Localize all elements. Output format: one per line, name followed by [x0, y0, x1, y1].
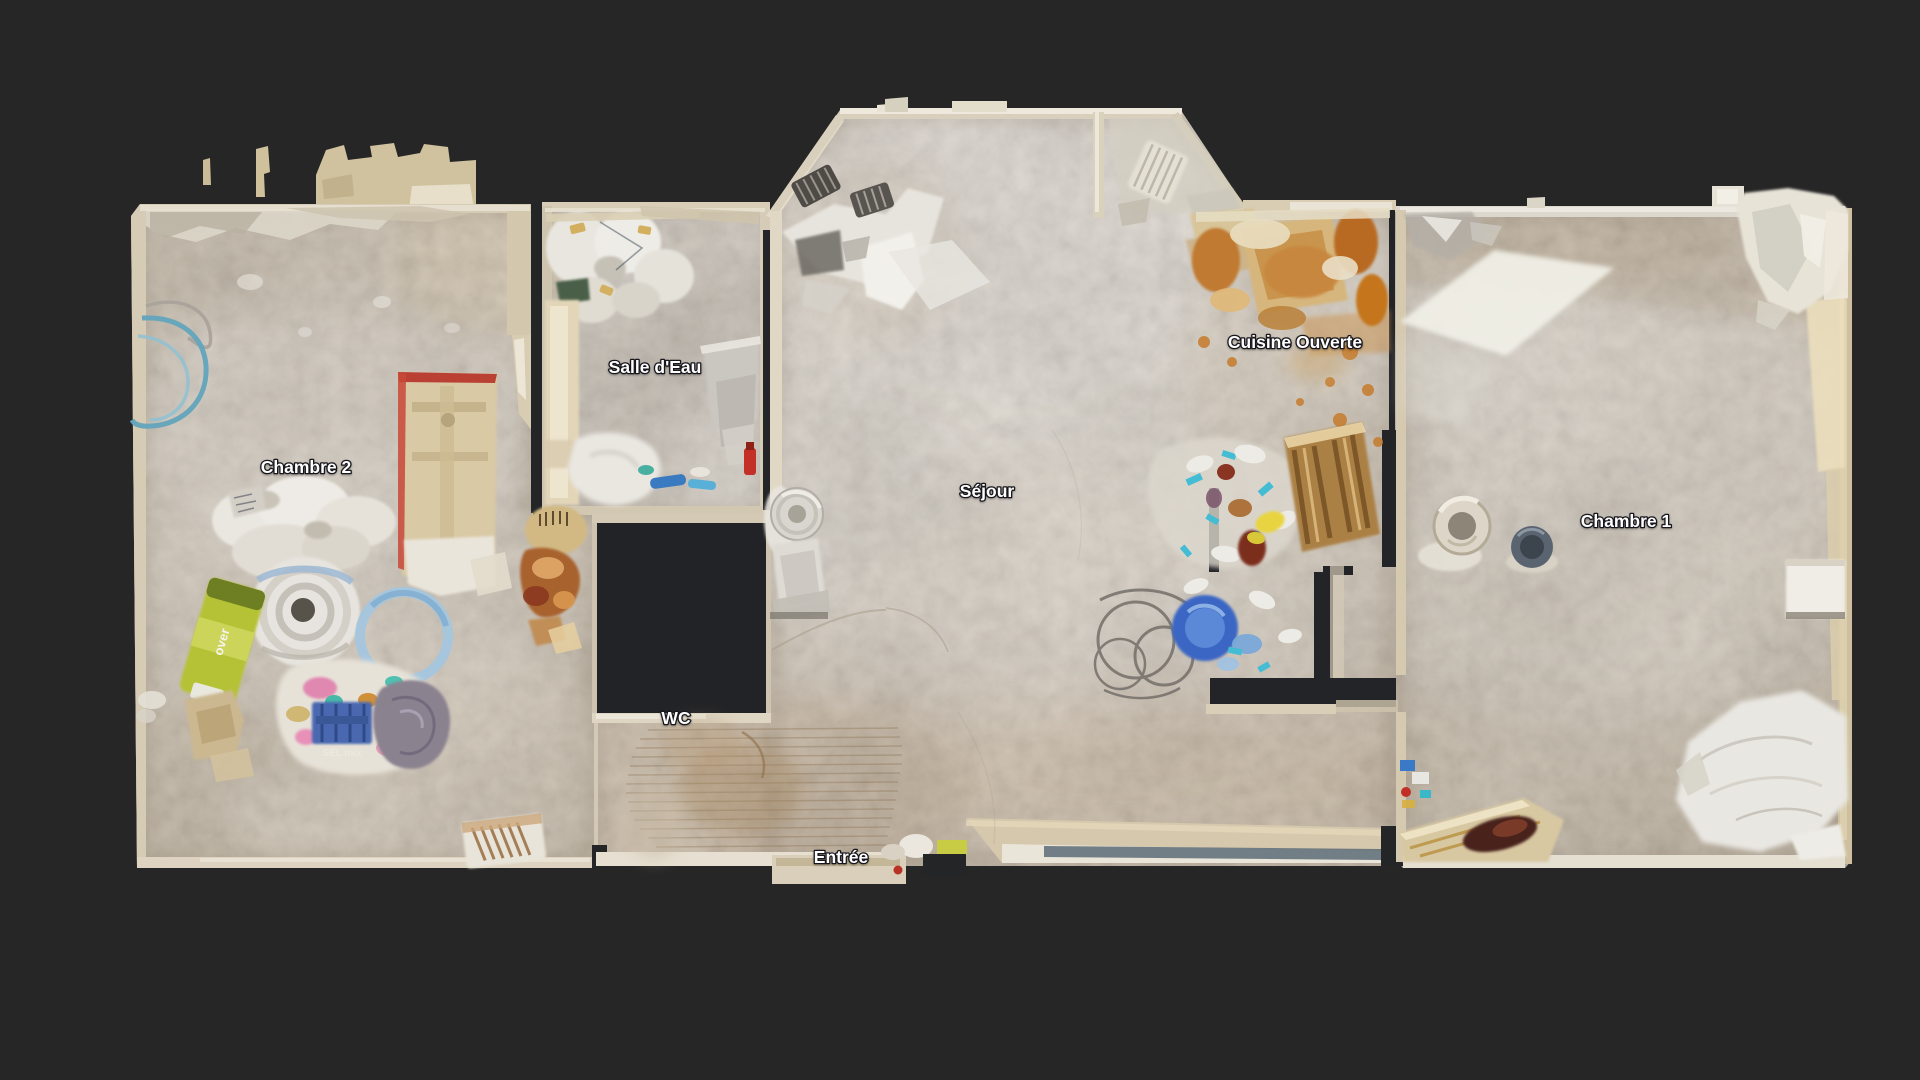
svg-text:SEL mix: SEL mix	[322, 748, 362, 759]
svg-text:Salle d'Eau: Salle d'Eau	[609, 357, 702, 377]
svg-text:Chambre 2: Chambre 2	[261, 457, 352, 477]
svg-text:Entrée: Entrée	[814, 847, 869, 867]
svg-text:Chambre 1: Chambre 1	[1581, 511, 1672, 531]
svg-text:Cuisine Ouverte: Cuisine Ouverte	[1228, 332, 1362, 352]
svg-text:Séjour: Séjour	[960, 481, 1015, 501]
svg-text:WC: WC	[661, 708, 691, 728]
